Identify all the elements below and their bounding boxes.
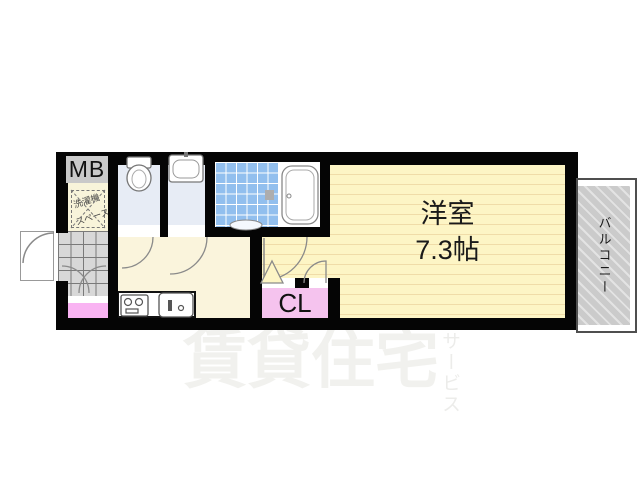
washbasin-room-floor [168,165,205,225]
wall-closet-right [328,278,340,318]
closet: CL [262,288,328,318]
room-name-label: 洋室 [330,196,565,232]
balcony: バルコニー [576,178,637,333]
entrance-door-leaf [20,231,54,281]
wall-closet-post [295,278,309,288]
watermark-service-text: サービス [436,331,463,415]
watermark-text: 賃貸住宅 [183,328,439,392]
kitchen-counter [117,291,196,318]
toilet-room-floor [118,165,160,225]
balcony-label: バルコニー [595,216,614,296]
washer-space: 洗濯機 スペース [68,183,108,231]
bathroom-block [205,152,330,237]
wall-bottom [56,318,578,330]
wall-entry-toilet [108,152,118,318]
bath-tile-floor [215,162,278,227]
wall-toilet-washbasin [160,152,168,237]
bathtub-area [278,162,320,227]
wall-hall-room [250,237,262,318]
mb-box: MB [66,156,108,183]
balcony-hatch: バルコニー [578,186,630,325]
mb-label: MB [69,156,106,183]
main-room-label: 洋室 7.3帖 [330,196,565,268]
floor-plan: 賃貸住宅 サービス 洗濯機 スペース CL MB バルコニー [0,0,640,480]
closet-label: CL [278,288,311,319]
room-size-label: 7.3帖 [330,232,565,268]
wall-left-lower [56,281,68,330]
